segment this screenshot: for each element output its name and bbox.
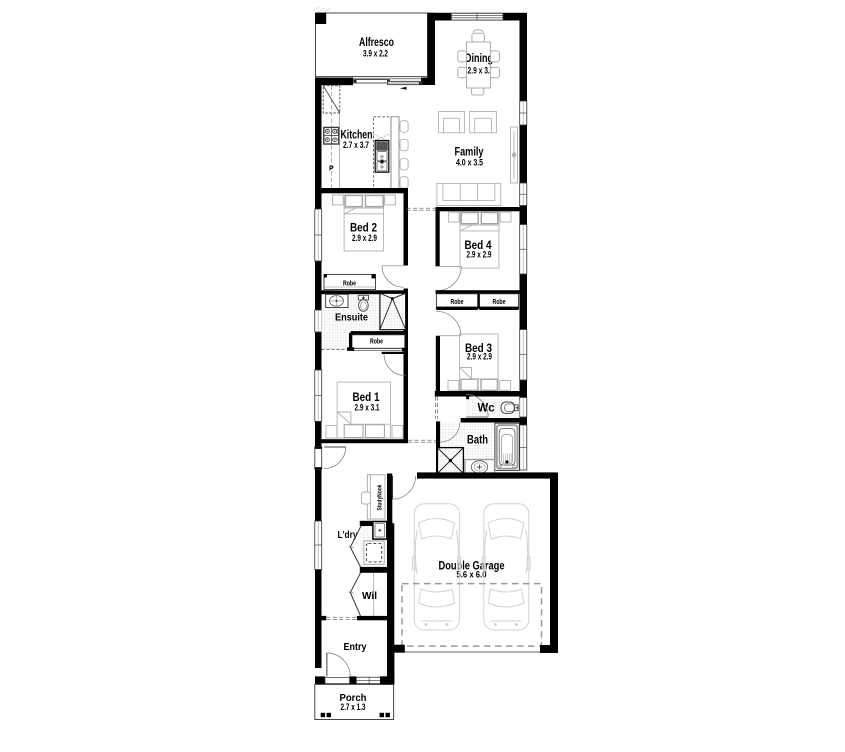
svg-text:Robe: Robe bbox=[451, 299, 464, 306]
svg-text:2.7 x 1.3: 2.7 x 1.3 bbox=[341, 702, 366, 712]
svg-text:Robe: Robe bbox=[370, 339, 383, 346]
svg-text:5.6 x 6.0: 5.6 x 6.0 bbox=[457, 570, 487, 580]
svg-text:Robe: Robe bbox=[493, 299, 506, 306]
svg-text:2.7 x 3.7: 2.7 x 3.7 bbox=[343, 140, 369, 150]
svg-text:3.9 x 2.2: 3.9 x 2.2 bbox=[363, 49, 388, 59]
svg-text:Family: Family bbox=[455, 145, 484, 159]
svg-text:2.9 x 2.9: 2.9 x 2.9 bbox=[467, 250, 492, 260]
svg-text:Entry: Entry bbox=[344, 641, 367, 653]
svg-text:2.9 x 3.1: 2.9 x 3.1 bbox=[355, 403, 380, 413]
svg-text:Wil: Wil bbox=[362, 590, 377, 602]
svg-text:Robe: Robe bbox=[343, 281, 356, 288]
svg-text:2.9 x 2.9: 2.9 x 2.9 bbox=[352, 233, 377, 243]
svg-text:Bath: Bath bbox=[467, 432, 488, 446]
svg-text:Dining: Dining bbox=[465, 51, 493, 65]
svg-text:P: P bbox=[329, 166, 334, 173]
svg-text:Ensuite: Ensuite bbox=[335, 312, 368, 324]
svg-text:2.9 x 2.9: 2.9 x 2.9 bbox=[467, 352, 492, 362]
svg-text:2.9 x 3.1: 2.9 x 3.1 bbox=[468, 66, 494, 76]
svg-text:4.0 x 3.5: 4.0 x 3.5 bbox=[456, 158, 483, 168]
svg-text:Alfresco: Alfresco bbox=[359, 35, 394, 49]
svg-text:StudyNook: StudyNook bbox=[377, 484, 384, 510]
